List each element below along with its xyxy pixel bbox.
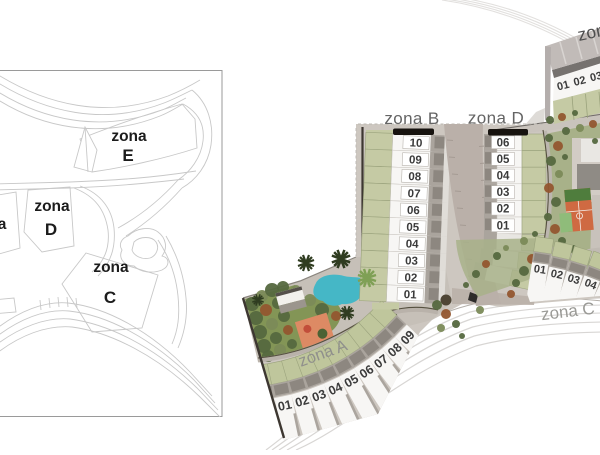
svg-text:08: 08 — [408, 171, 422, 184]
svg-text:C: C — [104, 288, 116, 307]
svg-text:04: 04 — [406, 238, 420, 251]
svg-text:03: 03 — [405, 255, 418, 267]
svg-text:zona: zona — [93, 259, 129, 276]
svg-text:02: 02 — [497, 204, 510, 216]
svg-text:02: 02 — [404, 272, 417, 284]
svg-text:10: 10 — [409, 137, 422, 149]
svg-text:a: a — [0, 216, 7, 233]
svg-text:zona D: zona D — [468, 109, 524, 128]
svg-text:05: 05 — [406, 222, 420, 235]
svg-text:01: 01 — [277, 397, 294, 414]
svg-text:zona: zona — [34, 198, 70, 215]
svg-text:01: 01 — [497, 220, 510, 232]
svg-text:09: 09 — [409, 154, 422, 166]
svg-text:D: D — [45, 220, 57, 239]
svg-text:06: 06 — [407, 205, 420, 217]
svg-text:zona: zona — [111, 128, 147, 145]
svg-text:01: 01 — [533, 263, 547, 277]
svg-text:03: 03 — [589, 70, 600, 85]
svg-text:05: 05 — [497, 154, 510, 166]
svg-text:07: 07 — [407, 188, 420, 200]
svg-text:06: 06 — [497, 137, 510, 149]
svg-text:03: 03 — [497, 187, 510, 199]
svg-text:01: 01 — [404, 289, 418, 302]
svg-text:E: E — [122, 146, 133, 165]
svg-text:04: 04 — [497, 171, 510, 183]
svg-text:zona B: zona B — [384, 109, 439, 128]
